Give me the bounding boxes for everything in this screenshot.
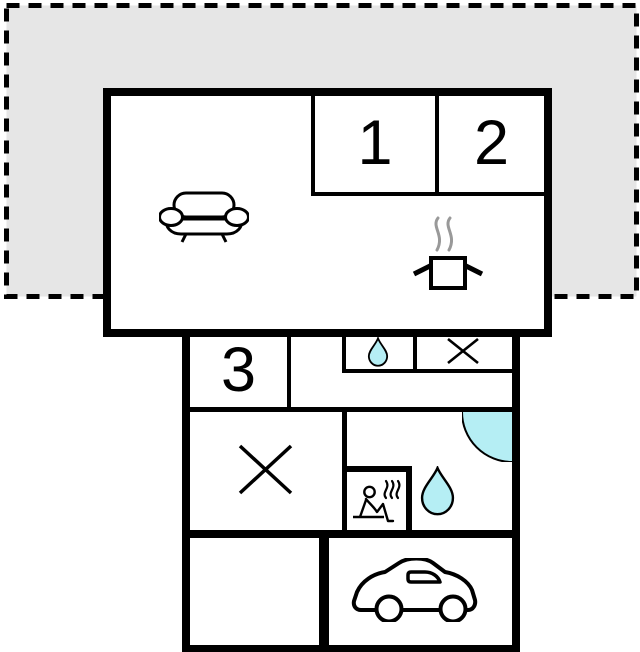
wall-sauna-top [347,466,412,472]
floorplan: 1 2 3 [0,0,640,652]
x-mark-large-icon [238,444,293,495]
wall-right-lower [512,329,520,652]
wall-sauna-right [406,470,412,532]
shower-icon [462,412,512,462]
wall-wc-box-bottom [342,369,512,373]
wall-mid-floor [103,329,552,337]
wall-wc-box-divider [413,335,417,371]
wall-wc-box-left [342,335,346,371]
wall-rooms-bottom [311,192,544,196]
car-icon [349,558,487,622]
wall-mid-bottom [190,530,512,538]
cooking-pot-icon [411,212,487,292]
wall-bottom [182,645,520,652]
room2-label: 2 [439,94,544,192]
water-drop-large-icon [419,466,456,520]
sauna-icon [350,473,405,528]
x-mark-small-icon [446,337,480,365]
sofa-icon [159,189,249,244]
water-drop-small-icon [367,336,389,368]
wall-left-upper [103,88,111,337]
steam-icon [436,218,440,250]
wall-left-lower [182,329,190,652]
wall-garage-divider [319,534,329,652]
wall-right-upper [544,88,552,337]
room1-label: 1 [315,94,435,192]
room3-label: 3 [190,334,287,407]
wall-room3-right [287,335,291,409]
steam-icon [448,218,452,250]
